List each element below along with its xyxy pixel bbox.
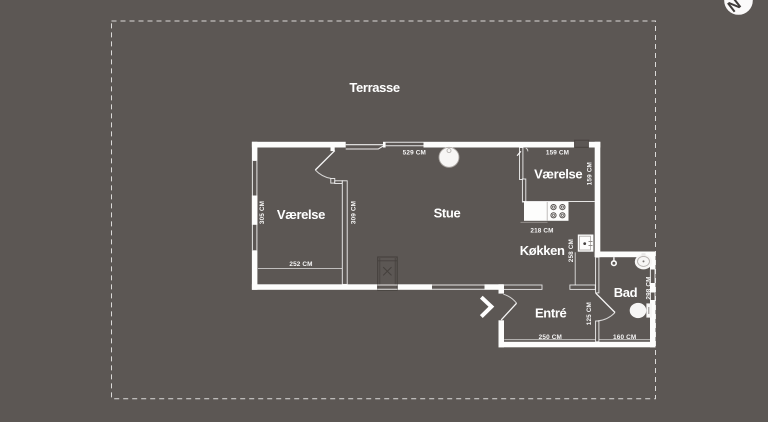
svg-text:218 CM: 218 CM (530, 227, 553, 234)
svg-text:125 CM: 125 CM (586, 302, 593, 325)
svg-text:Køkken: Køkken (520, 243, 565, 258)
svg-text:309 CM: 309 CM (350, 201, 357, 224)
svg-text:252 CM: 252 CM (289, 261, 312, 268)
svg-text:Værelse: Værelse (534, 166, 582, 181)
svg-text:250 CM: 250 CM (539, 334, 562, 341)
svg-text:Stue: Stue (434, 206, 461, 221)
svg-text:159 CM: 159 CM (546, 149, 569, 156)
svg-text:Værelse: Værelse (277, 207, 325, 222)
svg-text:298 CM: 298 CM (645, 276, 652, 299)
svg-text:Terrasse: Terrasse (349, 80, 400, 95)
svg-text:Entré: Entré (535, 305, 567, 320)
svg-text:Bad: Bad (614, 285, 638, 300)
svg-text:258 CM: 258 CM (568, 239, 575, 262)
svg-text:160 CM: 160 CM (613, 334, 636, 341)
svg-text:305 CM: 305 CM (259, 201, 266, 224)
svg-text:159 CM: 159 CM (587, 162, 594, 185)
svg-text:529 CM: 529 CM (403, 149, 426, 156)
